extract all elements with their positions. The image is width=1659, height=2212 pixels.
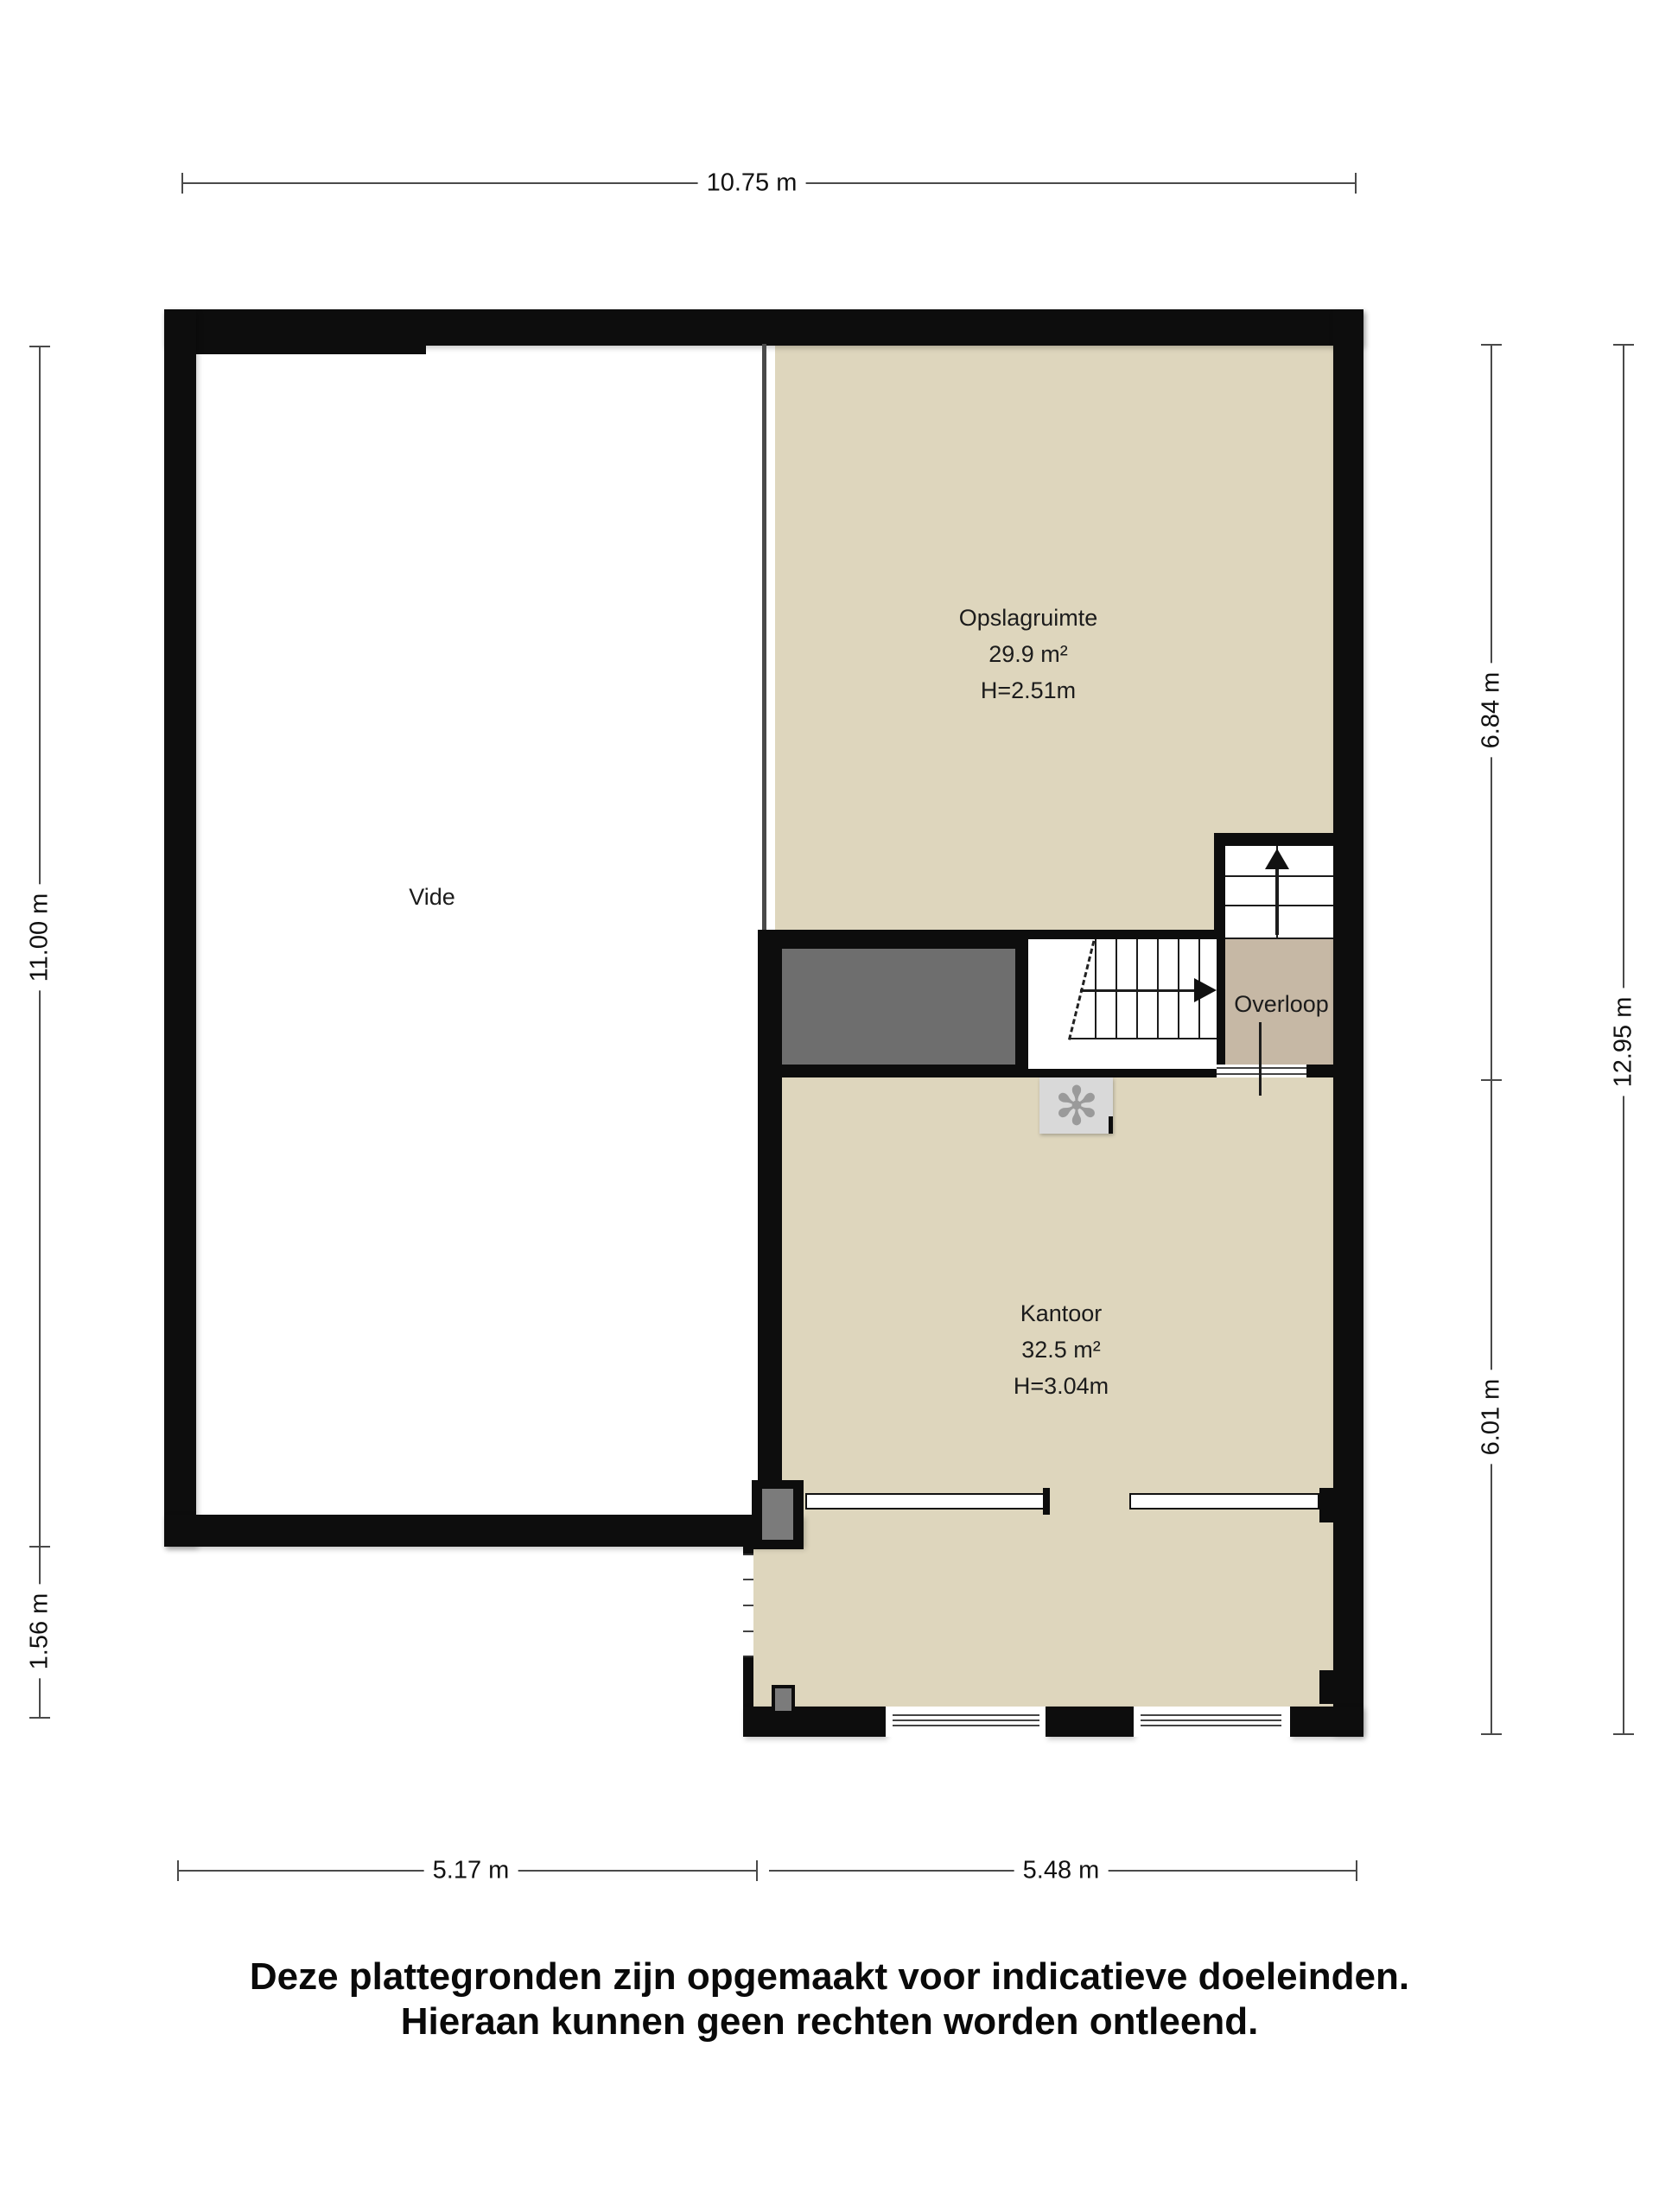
room-area: 29.9 m² xyxy=(959,636,1098,672)
stairs-direction-arrow-icon xyxy=(1194,978,1217,1002)
overloop-door-line xyxy=(1217,1073,1306,1075)
void-area xyxy=(782,949,1015,1065)
disclaimer-text: Deze plattegronden zijn opgemaakt voor i… xyxy=(0,1955,1659,2044)
dim-tick xyxy=(1356,1860,1357,1881)
floorplan-canvas: ✻ Vide Opslagruimte 29.9 m² H=2.51m Over… xyxy=(0,0,1659,2212)
corridor-top-wall xyxy=(758,930,1214,939)
dim-tick xyxy=(756,1860,758,1881)
dim-tick xyxy=(1481,344,1502,346)
right-wall-bump-lower xyxy=(1319,1670,1333,1704)
disclaimer-line-2: Hieraan kunnen geen rechten worden ontle… xyxy=(0,1999,1659,2044)
dim-tick xyxy=(1481,1733,1502,1735)
bottom-window-2-line xyxy=(1141,1725,1281,1726)
vide-partition-line xyxy=(762,344,766,930)
left-wall xyxy=(164,309,196,1547)
stair-overloop-wall xyxy=(1217,939,1225,1065)
dim-tick xyxy=(1613,1733,1634,1735)
junction-column xyxy=(762,1489,793,1540)
vide-bottom-wall xyxy=(164,1515,804,1547)
bottom-window-2-line xyxy=(1141,1714,1281,1716)
bottom-wall-mid xyxy=(1046,1707,1134,1737)
dim-label-right-inner-upper: 6.84 m xyxy=(1476,664,1508,758)
stairbox-top-wall xyxy=(1214,833,1333,846)
upper-stairs-tread xyxy=(1225,938,1333,939)
bottom-window-2-line xyxy=(1141,1719,1281,1721)
overloop-label: Overloop xyxy=(1234,986,1329,1022)
room-area: 32.5 m² xyxy=(1014,1332,1109,1368)
dim-tick xyxy=(1355,173,1357,194)
dim-label-left-upper: 11.00 m xyxy=(24,885,56,991)
dim-label-top: 10.75 m xyxy=(698,168,806,200)
bottom-window-1-line xyxy=(893,1719,1039,1721)
dim-tick xyxy=(177,1860,179,1881)
kantoor-room-left-extension xyxy=(753,1549,782,1707)
lowerleft-window-line xyxy=(743,1605,753,1606)
interior-window-strip-b xyxy=(1129,1493,1319,1510)
disclaimer-line-1: Deze plattegronden zijn opgemaakt voor i… xyxy=(0,1955,1659,1999)
interior-window-strip-a xyxy=(805,1493,1047,1510)
lowerleft-window-line xyxy=(743,1579,753,1580)
right-wall xyxy=(1333,309,1363,1734)
stairbox-left-wall xyxy=(1214,833,1225,939)
lowerleft-wall-bottom xyxy=(743,1657,753,1707)
interior-window-endcap xyxy=(1043,1488,1050,1515)
vide-room xyxy=(196,346,762,1515)
ventilation-box-tick xyxy=(1109,1116,1113,1134)
dim-label-bottom-right: 5.48 m xyxy=(1014,1855,1109,1887)
corridor-stairs xyxy=(1028,939,1217,1069)
dim-tick xyxy=(181,173,183,194)
room-name: Kantoor xyxy=(1014,1295,1109,1332)
upper-stairs-tread xyxy=(1225,905,1333,906)
dim-label-left-lower: 1.56 m xyxy=(24,1585,56,1679)
corridor-bottom-wall-right xyxy=(1306,1065,1333,1077)
lowerleft-window-line xyxy=(743,1630,753,1632)
opslagruimte-label: Opslagruimte 29.9 m² H=2.51m xyxy=(959,600,1098,709)
dim-tick xyxy=(1613,344,1634,346)
top-wall xyxy=(164,309,1363,346)
ventilation-icon: ✻ xyxy=(1054,1075,1099,1138)
dim-tick xyxy=(29,346,50,347)
kantoor-left-wall xyxy=(758,939,782,1515)
upper-stairs-arrow-shaft xyxy=(1275,864,1279,935)
bottom-notch-column xyxy=(775,1688,791,1711)
dim-label-right-outer: 12.95 m xyxy=(1608,988,1640,1096)
bottom-wall-left xyxy=(743,1707,886,1737)
overloop-door-swing-line xyxy=(1259,1022,1262,1096)
bottom-wall-right xyxy=(1290,1707,1363,1737)
top-wall-step xyxy=(164,346,426,354)
bottom-window-1 xyxy=(886,1707,1046,1737)
lowerleft-wall-top xyxy=(743,1547,753,1554)
dim-tick xyxy=(29,1717,50,1719)
kantoor-label: Kantoor 32.5 m² H=3.04m xyxy=(1014,1295,1109,1404)
room-height: H=3.04m xyxy=(1014,1368,1109,1404)
stair-arrow-shaft xyxy=(1080,989,1196,992)
overloop-door-line xyxy=(1217,1067,1306,1069)
right-wall-bump-upper xyxy=(1319,1488,1333,1522)
room-height: H=2.51m xyxy=(959,672,1098,709)
room-name: Opslagruimte xyxy=(959,600,1098,636)
stairs-up-arrow-icon xyxy=(1265,849,1289,869)
upper-stairs-tread xyxy=(1225,875,1333,877)
bottom-window-2 xyxy=(1134,1707,1290,1737)
dim-label-bottom-left: 5.17 m xyxy=(424,1855,518,1887)
bottom-window-1-line xyxy=(893,1725,1039,1726)
dim-label-right-inner-lower: 6.01 m xyxy=(1476,1370,1508,1465)
bottom-window-1-line xyxy=(893,1714,1039,1716)
stair-bottom-edge xyxy=(1070,1038,1217,1039)
vide-label: Vide xyxy=(409,879,455,915)
